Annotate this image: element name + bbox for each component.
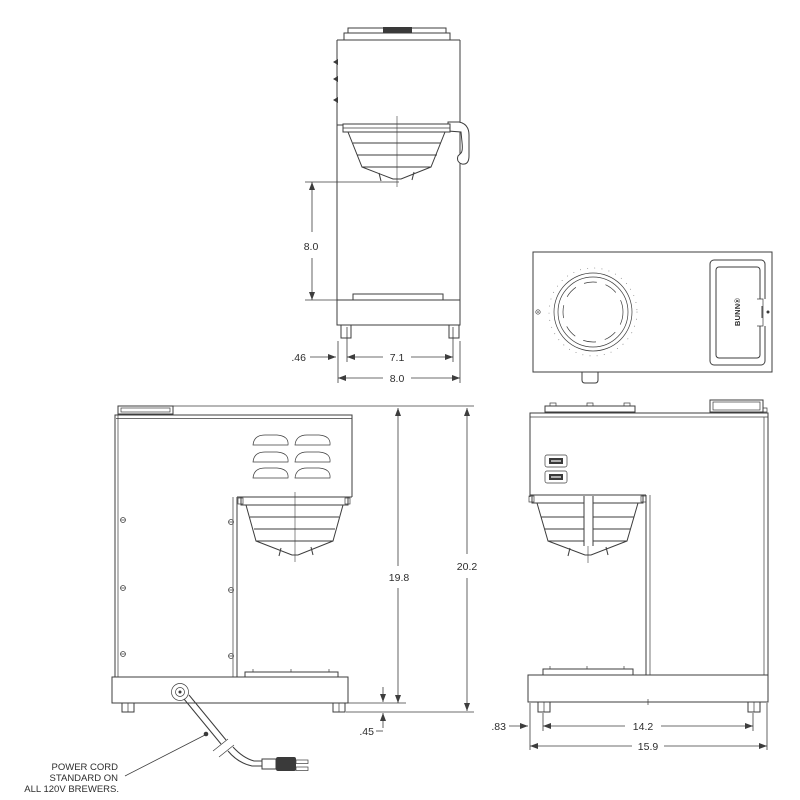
dim-front-bottom: .46 7.1 8.0 bbox=[291, 327, 460, 385]
base-drip-tray bbox=[543, 669, 633, 675]
tank-lid-top: BUNN® bbox=[710, 260, 770, 365]
dim-side-heights: 19.8 20.2 .45 bbox=[121, 406, 477, 738]
left-funnel bbox=[238, 492, 350, 562]
left-side-view bbox=[112, 406, 352, 771]
vent-louvers bbox=[253, 435, 330, 478]
base-drip-tray bbox=[245, 672, 338, 677]
plug-prong bbox=[296, 767, 308, 771]
right-base bbox=[528, 666, 768, 712]
front-lid bbox=[337, 27, 460, 40]
dim-label-front-foot-inset: .46 bbox=[291, 352, 306, 364]
top-rails bbox=[545, 406, 635, 412]
dim-label-side-foot-inset: .83 bbox=[491, 721, 506, 733]
front-base bbox=[337, 294, 460, 338]
top-view: BUNN® bbox=[533, 252, 772, 383]
dimensions: 8.0 .46 7.1 8.0 19.8 20.2 bbox=[121, 182, 767, 753]
dim-label-front-clearance: 8.0 bbox=[304, 241, 319, 253]
note-leader-line bbox=[125, 735, 205, 776]
funnel-handle-bracket bbox=[584, 496, 593, 546]
note-line-2: STANDARD ON bbox=[50, 773, 119, 784]
plug-body-icon bbox=[276, 757, 296, 771]
plug-sleeve bbox=[262, 759, 276, 769]
power-cord bbox=[172, 684, 309, 772]
front-left-foot bbox=[341, 325, 351, 338]
technical-drawing: BUNN® bbox=[0, 0, 800, 800]
rear-lid-edge bbox=[118, 406, 173, 414]
spec-drawing-canvas: BUNN® bbox=[0, 0, 800, 800]
right-side-view bbox=[528, 400, 768, 712]
dim-label-overall-depth: 15.9 bbox=[638, 741, 659, 753]
dim-label-body-height: 19.8 bbox=[389, 572, 410, 584]
warmer-plate-icon bbox=[549, 268, 637, 356]
dim-label-side-feet-span: 14.2 bbox=[633, 721, 654, 733]
front-right-foot bbox=[449, 325, 459, 338]
front-drip-tray bbox=[353, 294, 443, 300]
dim-label-front-feet-span: 7.1 bbox=[390, 352, 405, 364]
dim-label-front-width: 8.0 bbox=[390, 373, 405, 385]
power-cord-note: POWER CORD STANDARD ON ALL 120V BREWERS. bbox=[24, 735, 205, 795]
right-funnel bbox=[529, 495, 646, 563]
dim-label-base-height: .45 bbox=[359, 726, 374, 738]
dim-label-overall-height: 20.2 bbox=[457, 561, 478, 573]
front-funnel bbox=[343, 116, 469, 187]
left-base bbox=[112, 669, 348, 712]
top-view-tab bbox=[582, 372, 598, 383]
panel-screws bbox=[121, 518, 234, 659]
funnel-handle-icon bbox=[448, 122, 469, 164]
dim-side-bottom: .83 14.2 15.9 bbox=[491, 703, 767, 753]
note-line-3: ALL 120V BREWERS. bbox=[24, 784, 119, 795]
power-switches bbox=[545, 455, 567, 483]
brand-logo: BUNN® bbox=[733, 298, 742, 326]
dim-front-clearance: 8.0 bbox=[304, 182, 399, 300]
front-view bbox=[333, 27, 469, 338]
plug-prong bbox=[296, 760, 308, 764]
note-line-1: POWER CORD bbox=[52, 762, 119, 773]
top-screw bbox=[536, 310, 540, 314]
